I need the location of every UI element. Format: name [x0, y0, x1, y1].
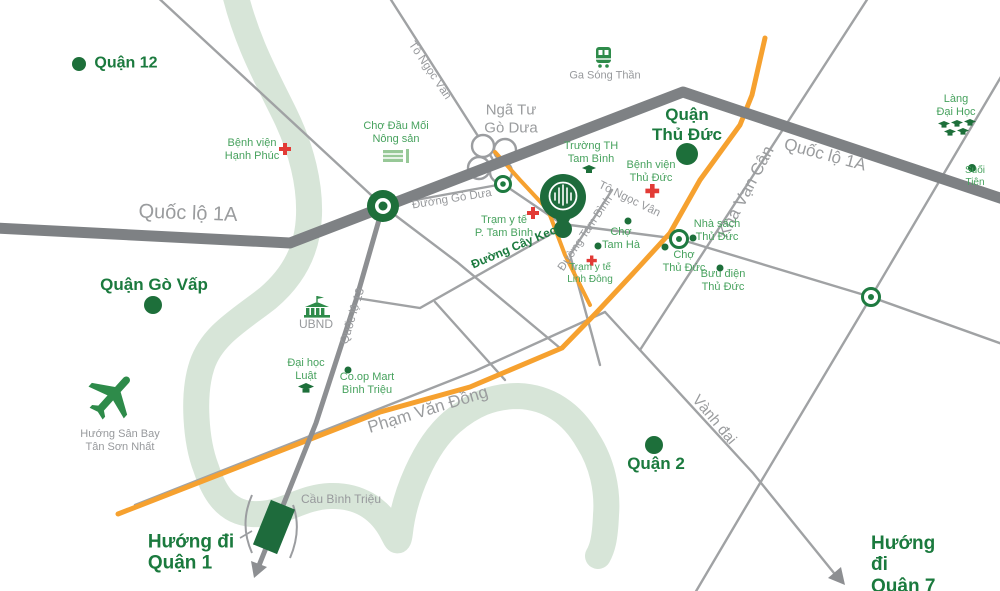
road-kha-van-can — [640, 0, 872, 350]
dot-quan-12 — [72, 57, 86, 71]
dot-quan-2 — [645, 436, 663, 454]
road-to-ngoc-van-mid — [562, 224, 1000, 345]
dot-suoi-tien — [968, 164, 976, 172]
dot-buu-dien — [717, 265, 724, 272]
map-geometry — [0, 0, 1000, 591]
road-local-1 — [383, 206, 560, 348]
roundabout-small — [496, 177, 511, 192]
dot-coop-mart — [345, 367, 352, 374]
dot-tam-ha-2 — [595, 243, 602, 250]
dot-quan-go-vap — [144, 296, 162, 314]
river-saigon — [196, 0, 606, 556]
roundabout-east — [863, 289, 880, 306]
train-station-icon — [596, 47, 611, 68]
dot-cho-thu-duc — [662, 244, 669, 251]
airplane-icon — [78, 362, 146, 430]
map-pin-icon[interactable] — [540, 174, 586, 238]
road-cay-keo — [356, 226, 565, 308]
road-vanh-dai — [605, 312, 838, 578]
dot-quan-thu-duc — [676, 143, 698, 165]
road-local-2 — [435, 302, 505, 380]
government-building-icon — [304, 296, 330, 318]
map-canvas: Quận 12 Bệnh viện Hạnh Phúc Quốc lộ 1A Q… — [0, 0, 1000, 591]
roundabout-big — [367, 190, 399, 222]
dot-nha-sach — [690, 235, 697, 242]
road-quoc-lo-1a — [0, 92, 1000, 243]
market-stall-icon — [383, 149, 409, 163]
dot-cho-tam-ha — [625, 218, 632, 225]
roundabout-cho-thu-duc — [671, 231, 688, 248]
